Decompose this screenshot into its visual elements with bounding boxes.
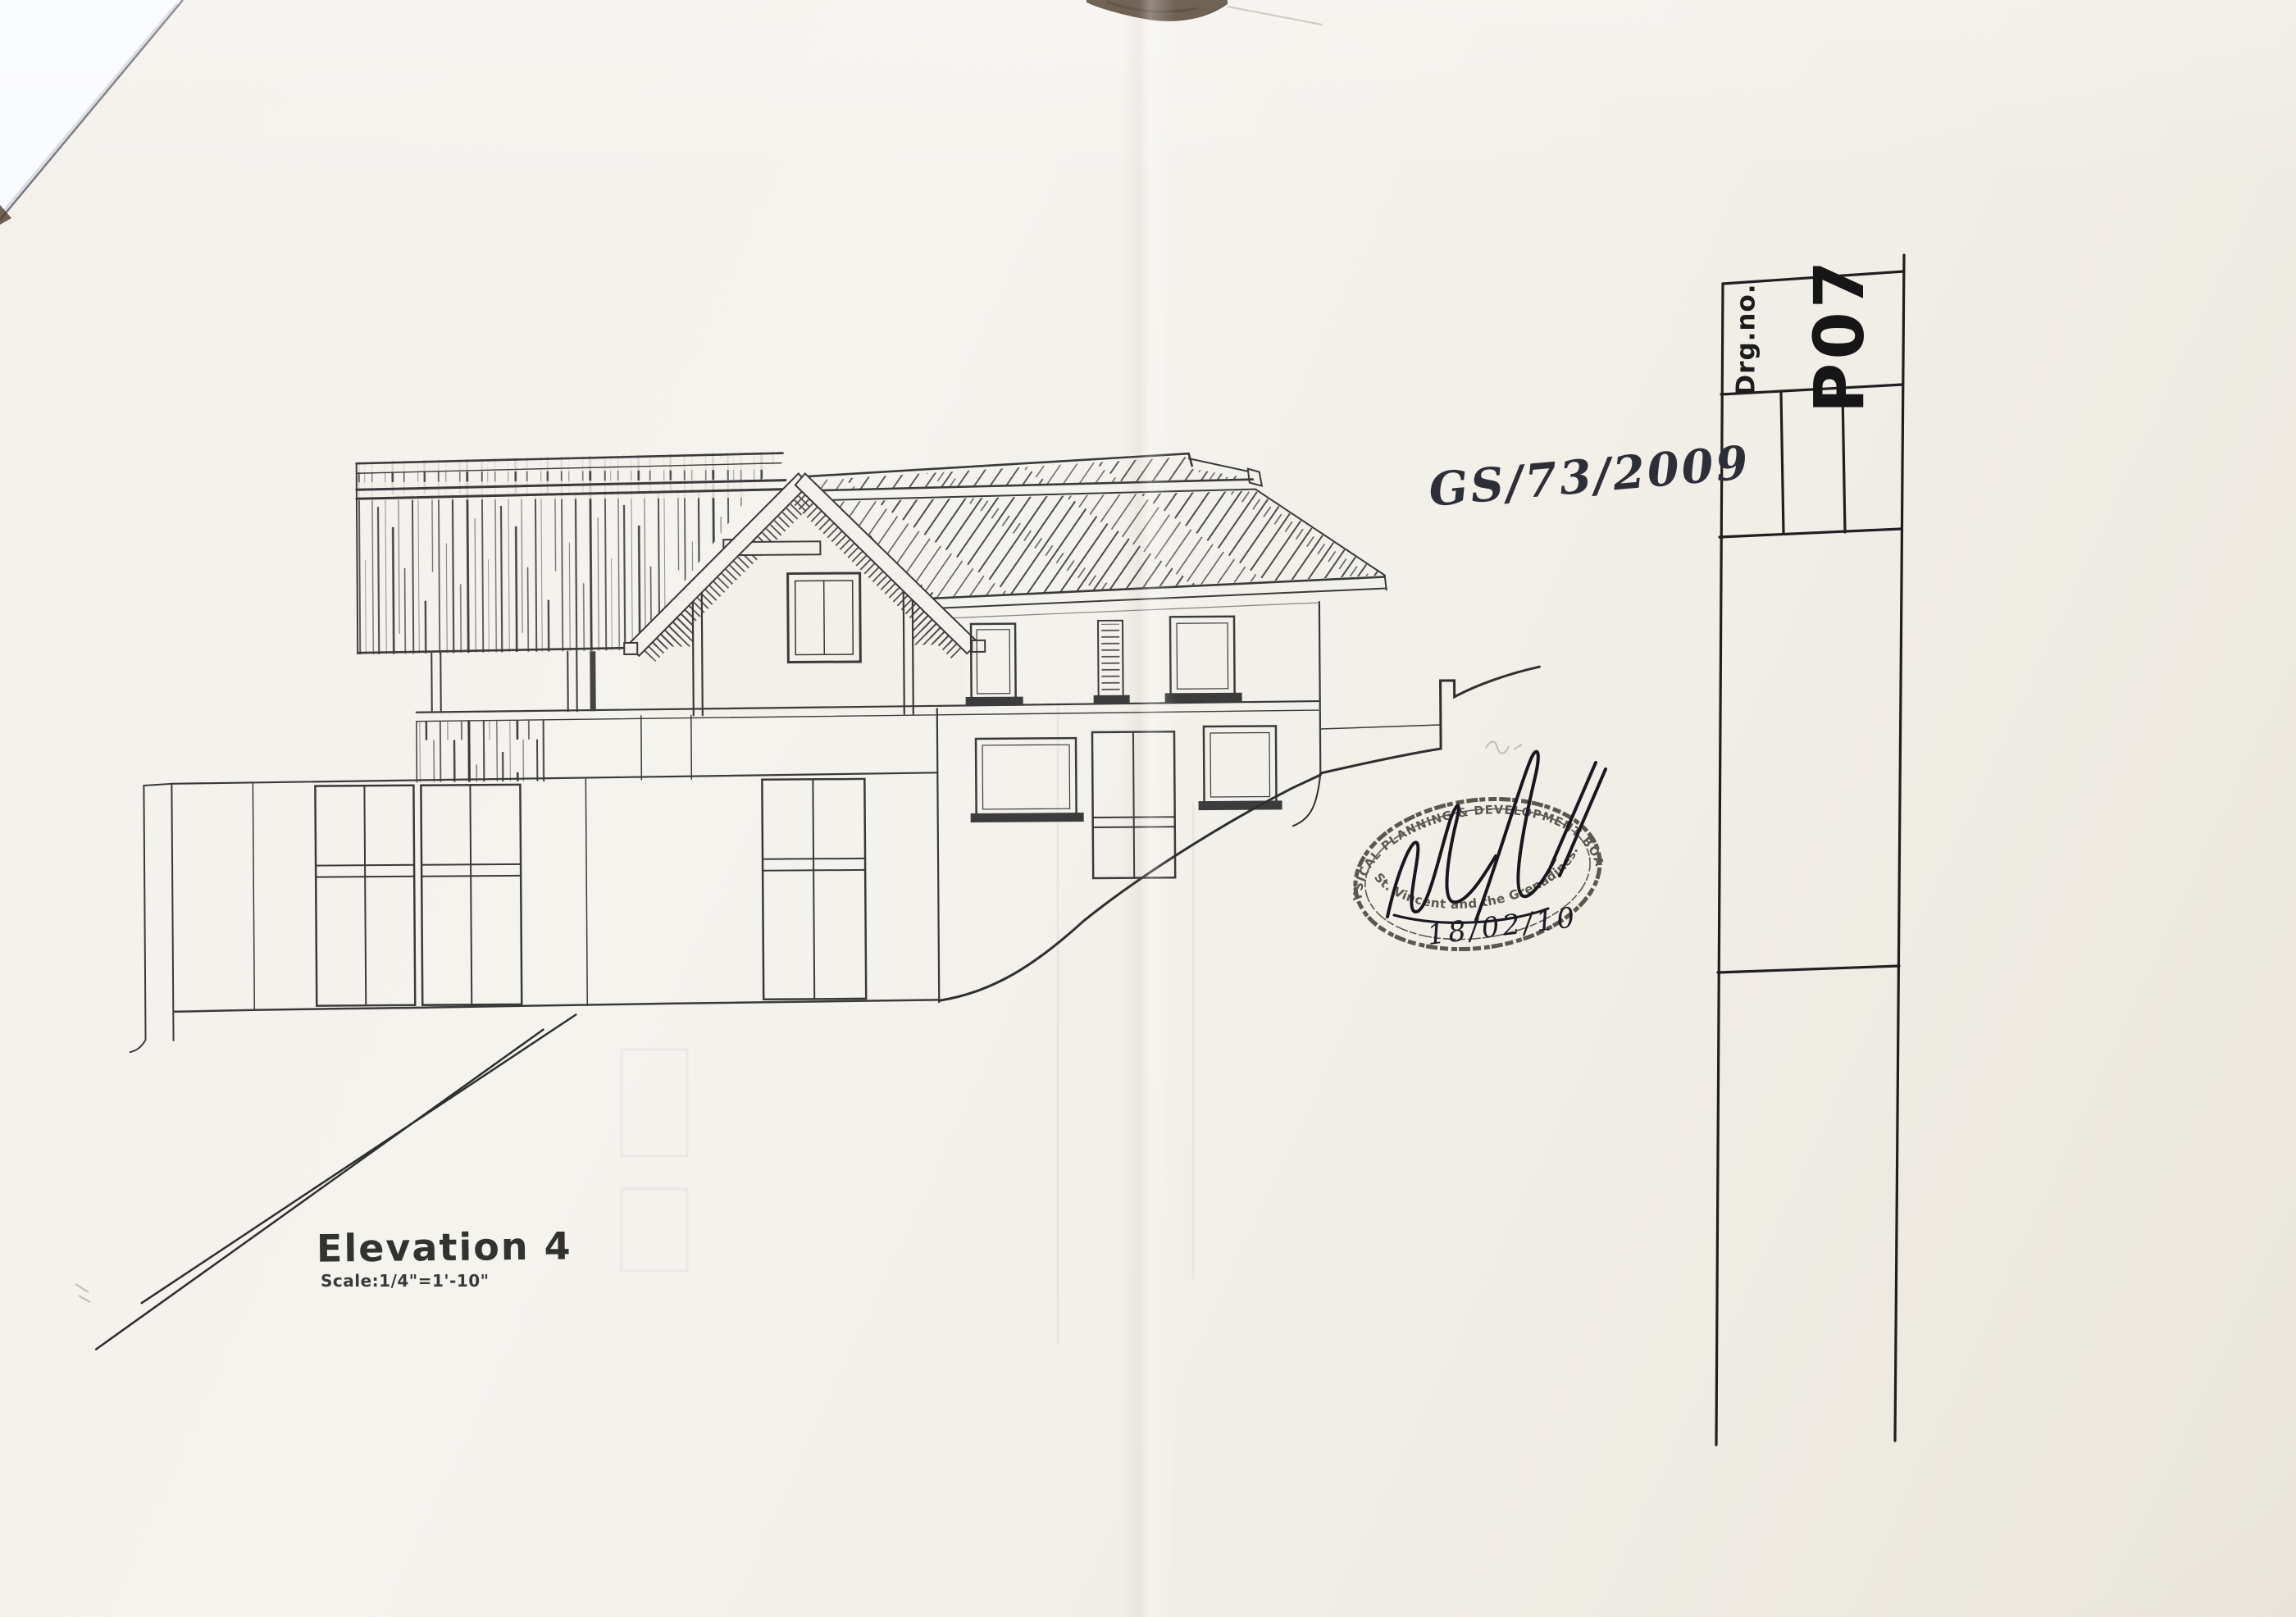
drg-no-value: P07 bbox=[1799, 257, 1879, 413]
drawing-title: Elevation 4 bbox=[317, 1223, 572, 1270]
driveway-ramp bbox=[93, 1014, 578, 1349]
elevation-sheet-svg: PHYSICAL PLANNING & DEVELOPMENT BOARD St… bbox=[0, 0, 2296, 1617]
bleed-through-ghosts bbox=[622, 705, 1193, 1345]
pencil-mark bbox=[1486, 742, 1522, 754]
under-sheet-corner bbox=[0, 0, 183, 225]
fold-mark bbox=[75, 1284, 90, 1302]
title-block-drg-no-cell: Drg.no. bbox=[1722, 282, 1771, 397]
scale-note: Scale:1/4"=1'-10" bbox=[321, 1271, 490, 1291]
drg-no-label: Drg.no. bbox=[1732, 283, 1761, 395]
table-edge-strip bbox=[1086, 0, 1322, 25]
lower-floor bbox=[128, 772, 939, 1052]
elevation-drawing bbox=[90, 446, 1545, 1349]
title-block-lines bbox=[1716, 255, 1904, 1445]
ground-line bbox=[936, 667, 1542, 1000]
title-block-drg-no-value-cell: P07 bbox=[1778, 276, 1901, 395]
scanned-drawing-sheet: PHYSICAL PLANNING & DEVELOPMENT BOARD St… bbox=[0, 0, 2296, 1617]
